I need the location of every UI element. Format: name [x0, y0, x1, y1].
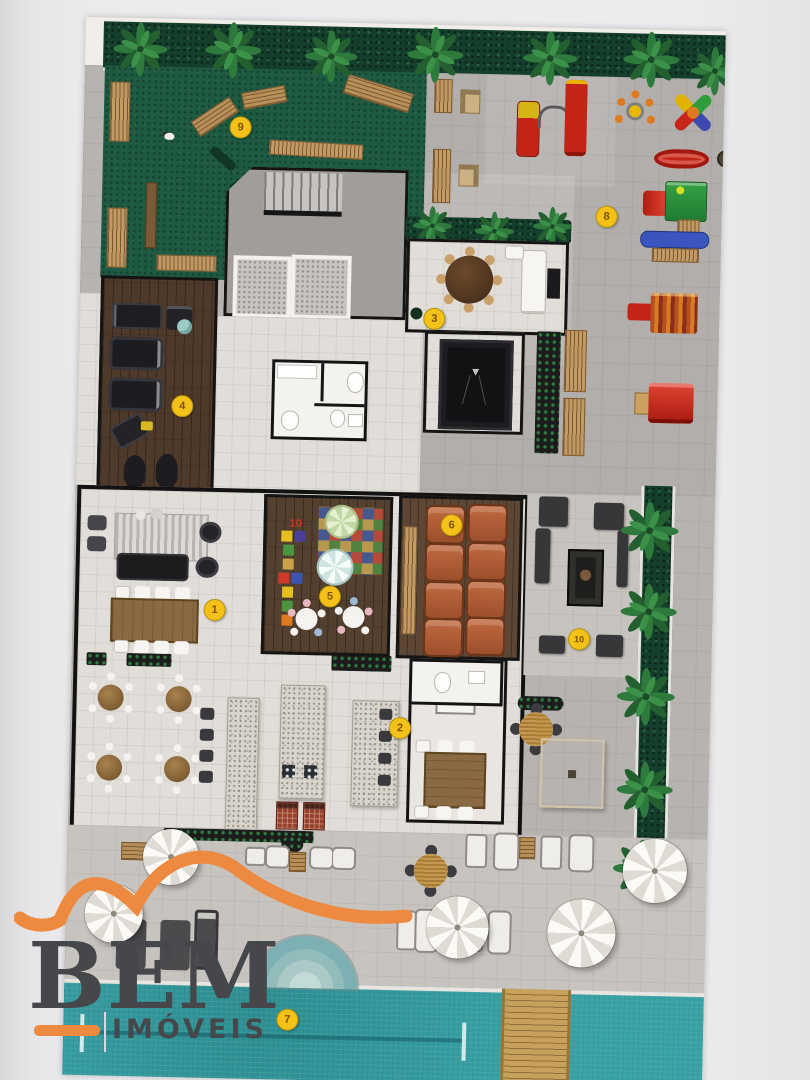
marker-9: 9 — [229, 116, 251, 138]
marker-10: 10 — [568, 628, 590, 650]
marker-5: 5 — [319, 585, 341, 607]
bem-imoveis-logo: BEM IMÓVEIS — [0, 820, 450, 1070]
marker-2: 2 — [389, 717, 411, 739]
logo-separator — [104, 1012, 106, 1052]
marker-1: 1 — [203, 599, 225, 621]
marker-6: 6 — [440, 514, 462, 536]
marker-3: 3 — [423, 308, 445, 330]
marker-8: 8 — [595, 205, 617, 227]
photographed-floor-plan: 10 — [0, 0, 810, 1080]
logo-underline-bar — [34, 1025, 100, 1036]
marker-4: 4 — [171, 395, 193, 417]
logo-brand-text: BEM — [28, 930, 281, 1022]
logo-subtitle-text: IMÓVEIS — [112, 1014, 268, 1045]
